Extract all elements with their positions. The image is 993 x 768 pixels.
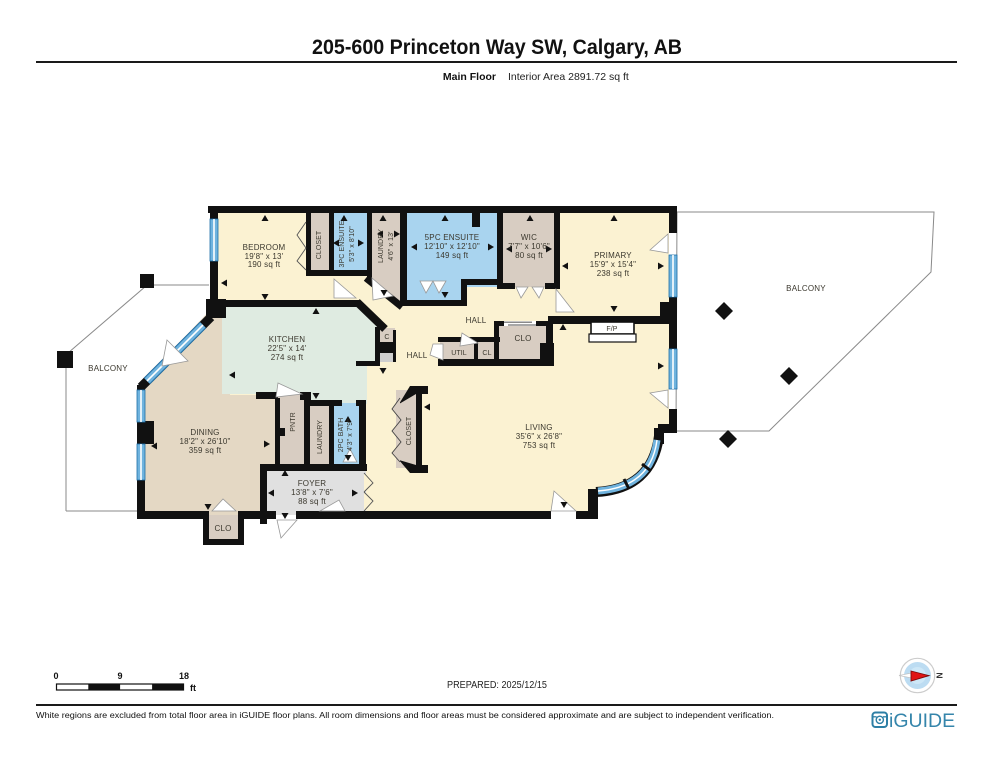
svg-text:LIVING: LIVING	[525, 423, 552, 432]
svg-text:PREPARED: 2025/12/15: PREPARED: 2025/12/15	[447, 680, 547, 691]
svg-text:18: 18	[179, 671, 189, 681]
svg-text:Interior Area 2891.72 sq ft: Interior Area 2891.72 sq ft	[508, 71, 629, 83]
svg-text:LAUNDRY: LAUNDRY	[378, 229, 385, 263]
svg-text:CLOSET: CLOSET	[406, 416, 413, 445]
svg-text:PRIMARY: PRIMARY	[594, 251, 632, 260]
svg-text:4'3" x 7'9": 4'3" x 7'9"	[347, 419, 354, 451]
svg-text:N: N	[935, 672, 945, 678]
svg-text:BALCONY: BALCONY	[88, 364, 128, 373]
svg-text:DINING: DINING	[190, 428, 219, 437]
svg-text:HALL: HALL	[407, 351, 428, 360]
svg-text:Main Floor: Main Floor	[443, 71, 496, 83]
svg-text:BALCONY: BALCONY	[786, 284, 826, 293]
svg-text:7'7" x 10'6": 7'7" x 10'6"	[508, 242, 550, 251]
svg-text:BEDROOM: BEDROOM	[243, 243, 286, 252]
svg-text:0: 0	[53, 671, 58, 681]
svg-text:2PC BATH: 2PC BATH	[338, 418, 345, 453]
svg-text:CLO: CLO	[514, 334, 531, 343]
svg-text:HALL: HALL	[466, 316, 487, 325]
svg-text:9: 9	[117, 671, 122, 681]
svg-text:88 sq ft: 88 sq ft	[298, 497, 326, 506]
svg-text:35'6" x 26'8": 35'6" x 26'8"	[516, 432, 562, 441]
svg-text:4'6" x 13': 4'6" x 13'	[388, 231, 395, 260]
svg-text:12'10" x 12'10": 12'10" x 12'10"	[424, 242, 480, 251]
svg-text:LAUNDRY: LAUNDRY	[317, 420, 324, 454]
svg-text:753 sq ft: 753 sq ft	[523, 441, 556, 450]
svg-text:CLOSET: CLOSET	[316, 230, 323, 259]
svg-text:359 sq ft: 359 sq ft	[189, 446, 222, 455]
svg-text:22'5" x 14': 22'5" x 14'	[268, 344, 307, 353]
svg-text:80 sq ft: 80 sq ft	[515, 251, 543, 260]
svg-text:CLO: CLO	[214, 524, 231, 533]
svg-text:PNTR: PNTR	[290, 412, 297, 431]
svg-text:5'3" x 8'10": 5'3" x 8'10"	[349, 226, 356, 262]
svg-text:18'2" x 26'10": 18'2" x 26'10"	[179, 437, 230, 446]
svg-text:CL: CL	[482, 350, 491, 357]
svg-text:WIC: WIC	[521, 233, 537, 242]
svg-text:3PC ENSUITE: 3PC ENSUITE	[339, 220, 346, 267]
svg-text:13'8" x 7'6": 13'8" x 7'6"	[291, 488, 333, 497]
svg-text:149 sq ft: 149 sq ft	[436, 251, 469, 260]
svg-text:White regions are excluded fro: White regions are excluded from total fl…	[36, 711, 774, 720]
svg-text:iGUIDE: iGUIDE	[889, 710, 955, 732]
svg-text:UTIL: UTIL	[451, 350, 467, 357]
svg-text:FOYER: FOYER	[298, 479, 327, 488]
svg-text:5PC ENSUITE: 5PC ENSUITE	[425, 233, 480, 242]
svg-text:ft: ft	[190, 683, 196, 693]
svg-text:C: C	[384, 334, 389, 341]
svg-text:205-600 Princeton Way SW, Calg: 205-600 Princeton Way SW, Calgary, AB	[312, 36, 682, 59]
svg-text:15'9" x 15'4": 15'9" x 15'4"	[590, 260, 636, 269]
svg-text:F/P: F/P	[606, 326, 617, 333]
svg-text:190 sq ft: 190 sq ft	[248, 260, 281, 269]
svg-text:238 sq ft: 238 sq ft	[597, 269, 630, 278]
svg-text:KITCHEN: KITCHEN	[269, 335, 306, 344]
svg-text:274 sq ft: 274 sq ft	[271, 353, 304, 362]
